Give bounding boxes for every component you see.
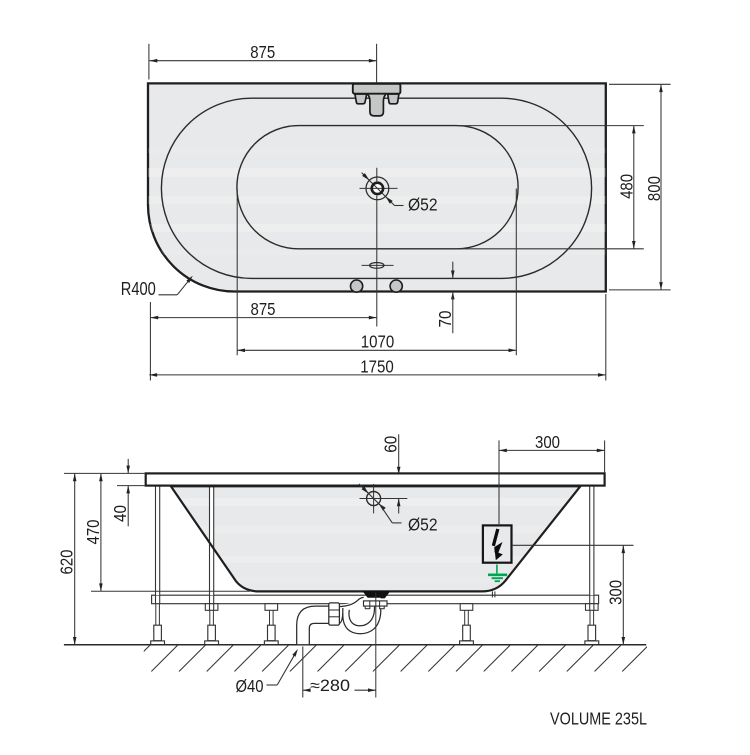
svg-text:875: 875 [250,42,275,62]
svg-text:800: 800 [644,176,664,201]
svg-text:R400: R400 [121,279,156,299]
svg-text:480: 480 [616,174,636,199]
svg-text:1070: 1070 [361,332,395,352]
svg-text:60: 60 [381,436,401,453]
svg-text:70: 70 [435,310,455,327]
svg-text:300: 300 [605,580,625,605]
svg-text:Ø52: Ø52 [408,515,438,535]
svg-text:620: 620 [57,549,77,574]
svg-text:Ø40: Ø40 [236,676,264,696]
svg-text:470: 470 [83,519,103,544]
svg-text:300: 300 [535,432,560,452]
svg-text:≈280: ≈280 [310,677,350,695]
svg-text:Ø52: Ø52 [408,194,438,214]
svg-text:VOLUME 235L: VOLUME 235L [550,709,647,729]
svg-text:1750: 1750 [360,356,394,376]
svg-text:875: 875 [251,299,276,319]
svg-text:40: 40 [110,505,130,522]
